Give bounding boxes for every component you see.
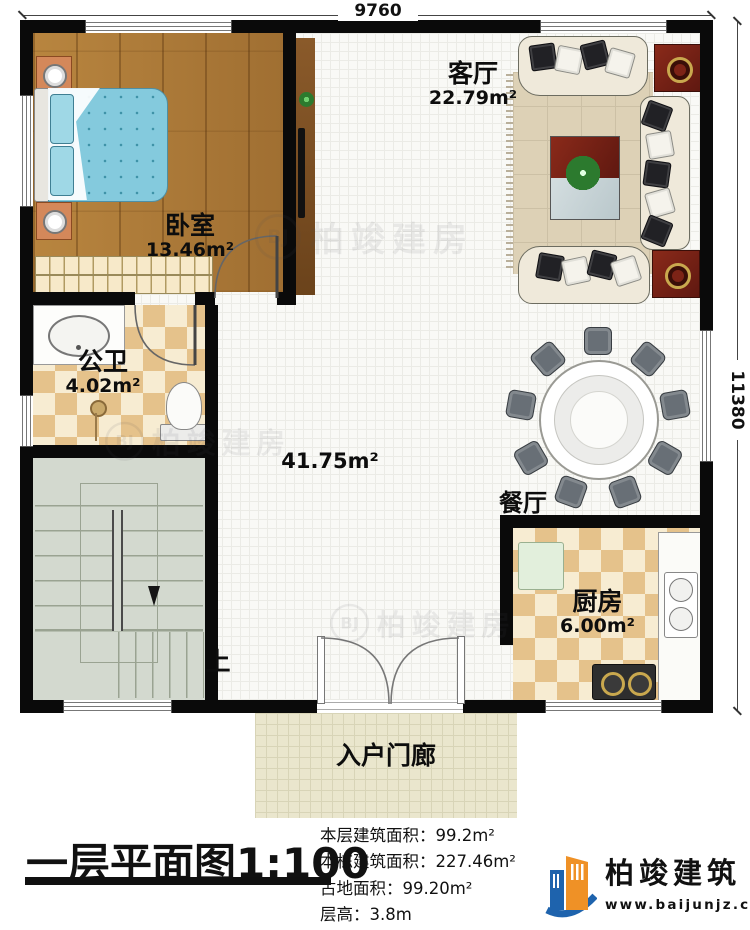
dining-chair <box>584 327 612 355</box>
sink-bowl <box>669 578 693 602</box>
sofa-pillow <box>645 130 675 160</box>
entry-door-leaf <box>457 636 465 704</box>
kitchen-sink <box>664 572 698 638</box>
window <box>545 700 662 713</box>
stat-row: 本栋建筑面积：227.46m² <box>320 849 516 875</box>
bed-pillow <box>50 94 74 144</box>
stat-value: 227.46m² <box>436 852 516 871</box>
kitchen-label: 厨房 6.00m² <box>540 588 655 637</box>
stairs-up-label: 上 <box>198 648 238 676</box>
dining-chair <box>659 389 691 421</box>
kitchen-area: 6.00m² <box>540 616 655 637</box>
stat-row: 层高：3.8m <box>320 902 516 928</box>
top-dimension-label: 9760 <box>338 1 418 21</box>
nightstand <box>36 202 72 240</box>
entry-threshold <box>317 700 463 713</box>
floor-drain <box>90 400 107 417</box>
toilet-bowl <box>166 382 202 430</box>
drain-handle <box>95 413 97 441</box>
bathroom-label: 公卫 4.02m² <box>48 348 158 397</box>
stat-label: 层高： <box>320 905 370 924</box>
bedroom-label: 卧室 13.46m² <box>125 212 255 261</box>
kitchen-name: 厨房 <box>540 588 655 616</box>
floor-plan-sheet: 9760 11380 <box>0 0 750 930</box>
porch-label: 入户门廊 <box>280 742 492 770</box>
end-table <box>654 44 702 92</box>
stairs-direction-arrow <box>148 586 160 606</box>
logo-tower-orange-slit <box>576 864 579 880</box>
logo-tower-orange-slit <box>571 864 574 880</box>
sofa-pillow <box>535 252 565 282</box>
window <box>85 20 232 33</box>
entry-door-leaf <box>317 636 325 704</box>
window <box>540 20 667 33</box>
end-table <box>652 250 700 298</box>
gold-ornament-icon <box>667 57 693 83</box>
bathroom-name: 公卫 <box>48 348 158 376</box>
stove <box>592 664 656 700</box>
living-room-name: 客厅 <box>408 60 538 88</box>
burner-icon <box>601 672 625 696</box>
right-dimension-label: 11380 <box>727 360 747 440</box>
stat-row: 占地面积：99.20m² <box>320 876 516 902</box>
lamp-icon <box>43 210 67 234</box>
stat-row: 本层建筑面积：99.2m² <box>320 823 516 849</box>
window <box>20 395 33 447</box>
stat-label: 本栋建筑面积： <box>320 852 436 871</box>
plant-icon <box>299 92 314 107</box>
living-room-label: 客厅 22.79m² <box>408 60 538 109</box>
stat-label: 本层建筑面积： <box>320 826 436 845</box>
logo-tower-blue-slit <box>553 874 555 888</box>
wardrobe-rail <box>36 274 212 276</box>
wall-kitchen-west <box>500 515 513 645</box>
dining-room-label: 餐厅 <box>468 490 578 517</box>
company-website: www.baijunjz.com <box>605 897 750 913</box>
wall-bathroom-south <box>33 445 218 458</box>
dining-table <box>539 360 659 480</box>
wardrobe <box>35 256 213 294</box>
bathroom-area: 4.02m² <box>48 376 158 397</box>
dining-chair <box>505 389 537 421</box>
company-logo-icon <box>545 850 597 918</box>
company-logo: 柏竣建筑 www.baijunjz.com <box>545 850 750 918</box>
title-underline <box>25 877 331 885</box>
wall-bathroom-east <box>205 305 218 445</box>
bed-pillow <box>50 146 74 196</box>
tv <box>298 128 305 218</box>
stairs-treads-lower <box>118 632 204 698</box>
hall-area-label: 41.75m² <box>268 450 392 474</box>
logo-tower-blue-slit <box>557 874 559 888</box>
wall-bedroom-south <box>277 292 296 305</box>
stat-label: 占地面积： <box>320 879 403 898</box>
bedroom-area: 13.46m² <box>125 240 255 261</box>
stat-value: 99.2m² <box>436 826 495 845</box>
lamp-icon <box>43 64 67 88</box>
wall-bedroom-east <box>283 33 296 292</box>
company-logo-text: 柏竣建筑 www.baijunjz.com <box>605 850 750 913</box>
sink-bowl <box>669 607 693 631</box>
wall-bedroom-south <box>33 292 135 305</box>
stairs-railing <box>112 510 123 631</box>
stats-block: 本层建筑面积：99.2m² 本栋建筑面积：227.46m² 占地面积：99.20… <box>320 823 516 929</box>
burner-icon <box>628 672 652 696</box>
sofa-pillow <box>642 159 671 188</box>
company-name: 柏竣建筑 <box>605 850 750 892</box>
window <box>20 95 33 207</box>
window <box>63 700 172 713</box>
plant-icon <box>562 152 604 194</box>
fridge <box>518 542 564 590</box>
living-room-area: 22.79m² <box>408 88 538 109</box>
window <box>700 330 713 462</box>
gold-ornament-icon <box>665 263 691 289</box>
stat-value: 3.8m <box>370 905 412 924</box>
stat-value: 99.20m² <box>403 879 473 898</box>
logo-tower-orange-slit <box>581 864 584 880</box>
wall-bedroom-south <box>195 292 215 305</box>
bedroom-name: 卧室 <box>125 212 255 240</box>
dining-table-center <box>570 391 628 449</box>
